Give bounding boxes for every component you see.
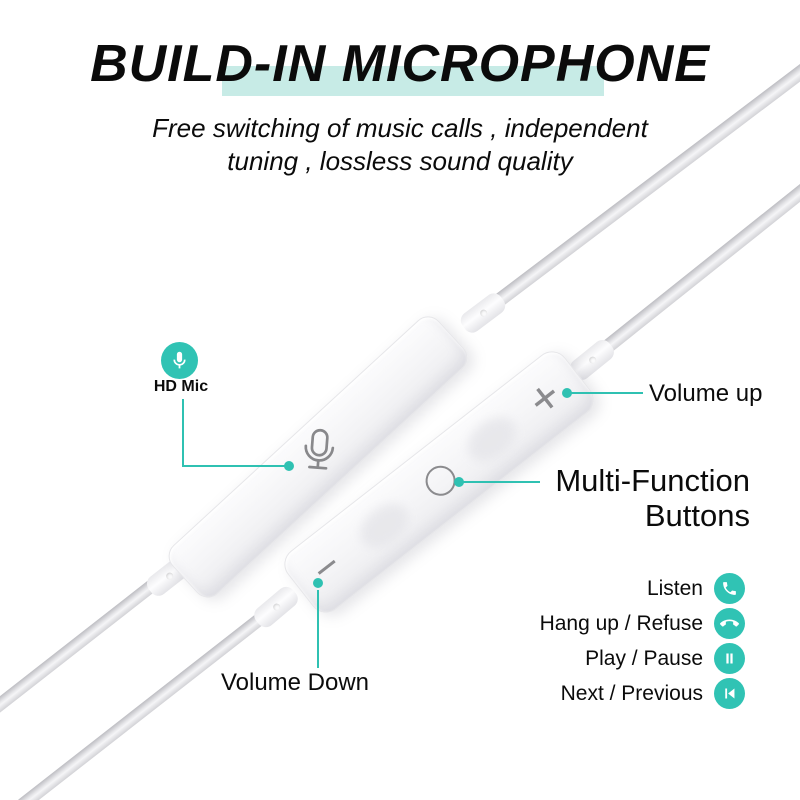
hd-mic-callout-dot [284, 461, 294, 471]
page-title: BUILD-IN MICROPHONE [0, 34, 800, 94]
poster-canvas: BUILD-IN MICROPHONE Free switching of mu… [0, 0, 800, 800]
feature-label: Play / Pause [585, 647, 703, 671]
feature-label: Listen [647, 577, 703, 601]
volume-up-callout-dot [562, 388, 572, 398]
volume-down-callout-line [317, 590, 319, 668]
hd-mic-label: HD Mic [139, 378, 223, 396]
button-bump [352, 495, 417, 557]
strain-relief [251, 583, 302, 631]
hd-mic-callout-line-horizontal [182, 465, 286, 467]
subtitle-line-1: Free switching of music calls , independ… [0, 112, 800, 145]
phone-hangup-icon [714, 608, 745, 639]
strain-relief [457, 290, 509, 336]
button-bump [460, 409, 525, 471]
microphone-marking-icon [292, 425, 346, 479]
multi-function-label-line-2: Buttons [555, 498, 750, 533]
pause-icon [714, 643, 745, 674]
microphone-icon [169, 350, 190, 371]
skip-previous-icon [714, 678, 745, 709]
feature-row-play-pause: Play / Pause [540, 643, 745, 674]
multi-function-label: Multi-Function Buttons [555, 463, 750, 533]
hd-mic-badge [161, 342, 198, 379]
hd-mic-callout-line-vertical [182, 399, 184, 466]
feature-label: Next / Previous [561, 682, 703, 706]
phone-call-icon [714, 573, 745, 604]
feature-row-next-previous: Next / Previous [540, 678, 745, 709]
volume-up-marking: + [510, 364, 580, 435]
multi-function-callout-dot [454, 477, 464, 487]
multi-function-label-line-1: Multi-Function [555, 463, 750, 498]
feature-list: Listen Hang up / Refuse Play / Pause [540, 573, 745, 713]
multi-function-callout-line [462, 481, 540, 483]
volume-down-marking: − [293, 534, 360, 601]
volume-up-callout-line [570, 392, 643, 394]
feature-row-listen: Listen [540, 573, 745, 604]
volume-down-callout-dot [313, 578, 323, 588]
feature-label: Hang up / Refuse [540, 612, 703, 636]
cable-lower-left-2 [14, 600, 282, 800]
feature-row-hang-up: Hang up / Refuse [540, 608, 745, 639]
volume-down-label: Volume Down [203, 669, 387, 697]
volume-up-label: Volume up [649, 380, 762, 408]
